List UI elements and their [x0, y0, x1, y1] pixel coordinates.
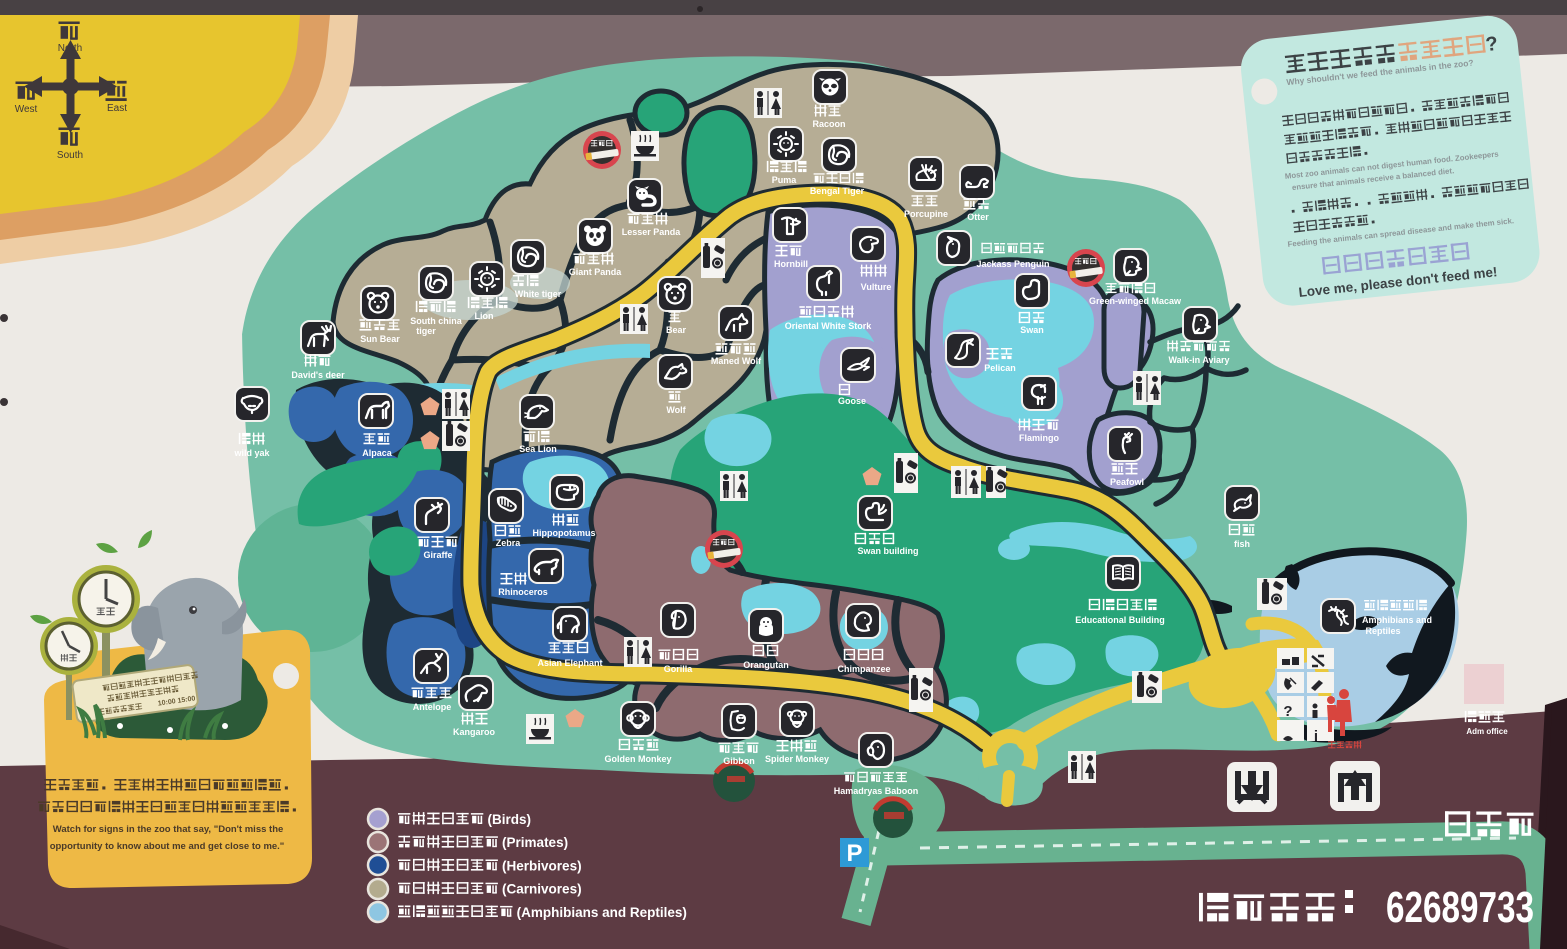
svg-text:Hornbill: Hornbill — [774, 259, 808, 269]
svg-text:Lion: Lion — [475, 311, 494, 321]
svg-text:Sun Bear: Sun Bear — [360, 334, 400, 344]
svg-text:Kangaroo: Kangaroo — [453, 727, 496, 737]
svg-text:Maned Wolf: Maned Wolf — [711, 356, 762, 366]
svg-text:Porcupine: Porcupine — [904, 209, 948, 219]
svg-text:Bengal Tiger: Bengal Tiger — [810, 186, 865, 196]
svg-text:(Herbivores): (Herbivores) — [502, 858, 582, 873]
svg-text:Bear: Bear — [666, 325, 687, 335]
svg-text:?: ? — [1283, 703, 1292, 720]
svg-text:Antelope: Antelope — [413, 702, 452, 712]
svg-text:Rhinoceros: Rhinoceros — [498, 587, 548, 597]
svg-text:Green-winged Macaw: Green-winged Macaw — [1089, 296, 1182, 306]
svg-text:Watch for signs in the zoo tha: Watch for signs in the zoo that say, "Do… — [53, 824, 284, 835]
svg-text:Educational Building: Educational Building — [1075, 615, 1165, 625]
svg-text:opportunity to know about me a: opportunity to know about me and get clo… — [50, 841, 285, 852]
svg-text:(Amphibians and Reptiles): (Amphibians and Reptiles) — [517, 905, 687, 920]
svg-text:Giraffe: Giraffe — [423, 550, 452, 560]
svg-text:Vulture: Vulture — [861, 282, 892, 292]
svg-text:Zebra: Zebra — [496, 538, 522, 548]
svg-text:?: ? — [1484, 33, 1498, 56]
svg-text:Otter: Otter — [967, 212, 989, 222]
svg-text:South china: South china — [410, 316, 462, 326]
svg-text:Golden Monkey: Golden Monkey — [604, 754, 671, 764]
svg-text:Gorilla: Gorilla — [664, 664, 694, 674]
svg-text:Sea Lion: Sea Lion — [519, 444, 557, 454]
svg-text:Adm office: Adm office — [1466, 727, 1508, 736]
svg-text:East: East — [107, 103, 127, 114]
svg-text:(Carnivores): (Carnivores) — [502, 882, 582, 897]
svg-text:Puma: Puma — [772, 175, 798, 185]
svg-text:South: South — [57, 150, 83, 161]
svg-text:Goose: Goose — [838, 396, 866, 406]
svg-text:P: P — [846, 840, 862, 867]
svg-text:Pelican: Pelican — [984, 363, 1016, 373]
svg-text:Walk-in Aviary: Walk-in Aviary — [1168, 355, 1229, 365]
svg-text:i: i — [1314, 728, 1318, 745]
svg-text:fish: fish — [1234, 539, 1250, 549]
svg-text:(Primates): (Primates) — [502, 835, 568, 850]
svg-text:tiger: tiger — [416, 326, 436, 336]
svg-text:Oriental White Stork: Oriental White Stork — [785, 321, 873, 331]
svg-text:Hippopotamus: Hippopotamus — [533, 528, 596, 538]
svg-text:wild yak: wild yak — [233, 448, 270, 458]
svg-text:North: North — [58, 43, 82, 54]
svg-text:Swan building: Swan building — [858, 546, 919, 556]
svg-text:Orangutan: Orangutan — [743, 660, 789, 670]
svg-text:Chimpanzee: Chimpanzee — [837, 664, 890, 674]
svg-text:David's deer: David's deer — [291, 370, 345, 380]
svg-text:White tiger: White tiger — [515, 289, 562, 299]
svg-text:Reptiles: Reptiles — [1365, 626, 1400, 636]
svg-text:Asian Elephant: Asian Elephant — [537, 658, 602, 668]
svg-text:Peafowl: Peafowl — [1110, 477, 1144, 487]
svg-text:62689733: 62689733 — [1386, 883, 1534, 932]
svg-text:Hamadryas Baboon: Hamadryas Baboon — [834, 786, 919, 796]
svg-text:Spider Monkey: Spider Monkey — [765, 754, 829, 764]
svg-text:Giant Panda: Giant Panda — [569, 267, 623, 277]
svg-text:(Birds): (Birds) — [487, 812, 530, 827]
svg-text:Gibbon: Gibbon — [723, 756, 755, 766]
svg-text:Jackass Penguin: Jackass Penguin — [976, 259, 1049, 269]
svg-text:Swan: Swan — [1020, 325, 1044, 335]
svg-text:Racoon: Racoon — [812, 119, 845, 129]
svg-text:Lesser Panda: Lesser Panda — [622, 227, 682, 237]
svg-text:West: West — [15, 104, 38, 115]
svg-text:Flamingo: Flamingo — [1019, 433, 1060, 443]
svg-text:Alpaca: Alpaca — [362, 448, 393, 458]
svg-text:Wolf: Wolf — [666, 405, 686, 415]
svg-text:Amphibians and: Amphibians and — [1362, 615, 1432, 625]
